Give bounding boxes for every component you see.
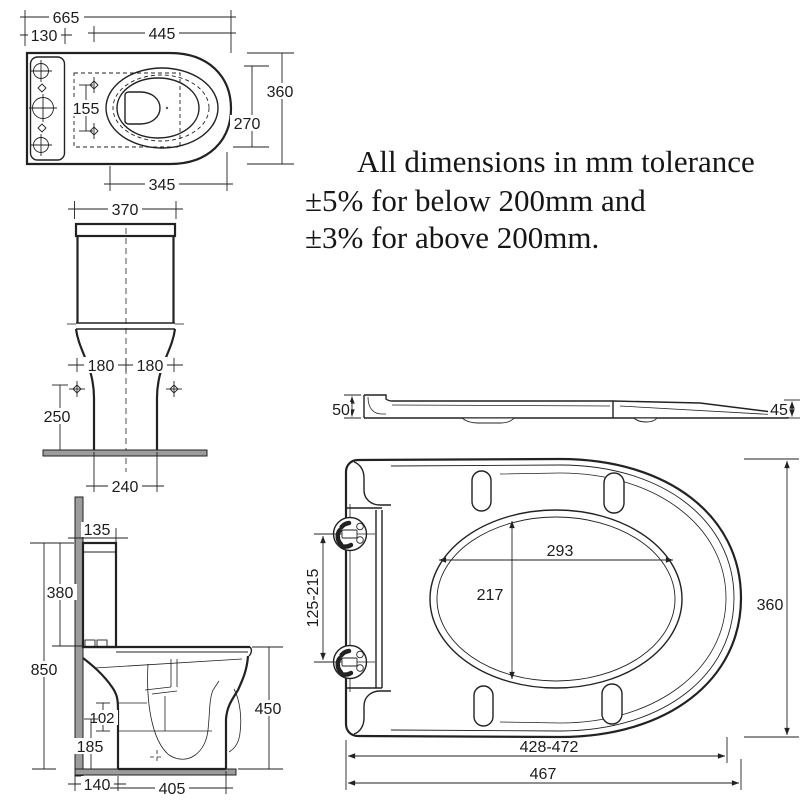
dim-label-front-fixing-height: 250: [44, 409, 71, 426]
seat-top-view: 293 217 360 125-215 428-472 467: [305, 459, 799, 790]
floor-front-view: [43, 450, 207, 456]
dim-label-top-bowl-width: 270: [234, 116, 261, 133]
cistern-lid-front: [76, 224, 175, 236]
cistern-fixing-marks: [29, 60, 57, 156]
dim-label-front-fixing-right: 180: [137, 358, 164, 375]
seat-bumper-2: [634, 418, 657, 422]
seat-bumper-1: [462, 418, 514, 423]
bowl-center-mark: [166, 107, 168, 109]
seat-side-view: 50 45: [330, 395, 800, 423]
dim-label-seat-opening-width: 217: [477, 587, 504, 604]
note-line-2: ±5% for below 200mm and: [305, 183, 646, 218]
seat-side-inner-lines: [368, 397, 780, 415]
bowl-outer-rim: [106, 68, 218, 148]
bowl-sump: [125, 92, 160, 124]
dim-label-side-bowl-height: 450: [255, 701, 282, 718]
dim-label-seat-overall-length: 467: [530, 766, 557, 783]
toilet-front-view: 370 180 180 250 240: [40, 201, 207, 496]
dim-label-top-cistern-depth: 130: [31, 28, 58, 45]
dim-label-seat-fixing-range: 428-472: [520, 739, 579, 756]
dim-label-seat-opening-length: 293: [547, 543, 574, 560]
dim-label-side-cistern-height: 380: [47, 585, 74, 602]
dim-label-top-overall-length: 665: [53, 10, 80, 27]
dim-label-side-outlet-offset: 102: [89, 710, 114, 727]
front-fixing-markers: [69, 381, 182, 397]
toilet-top-view: 665 130 445 345 270 360: [20, 9, 297, 194]
cistern-side-outline: [83, 543, 116, 647]
note-line-3: ±3% for above 200mm.: [305, 220, 599, 255]
dim-label-seat-hinge-pitch: 125-215: [305, 569, 322, 628]
toilet-dimension-drawing: 665 130 445 345 270 360: [0, 0, 800, 800]
technical-drawing-sheet: 665 130 445 345 270 360: [0, 0, 800, 800]
note-line-1: All dimensions in mm tolerance: [357, 144, 755, 179]
seat-side-outline: [364, 395, 788, 418]
dim-label-seat-hinge-thickness: 50: [332, 402, 350, 419]
dim-label-front-base-width: 240: [112, 479, 139, 496]
dim-label-side-cistern-depth: 135: [84, 522, 111, 539]
dim-label-front-fixing-left: 180: [88, 358, 115, 375]
dim-label-seat-front-thickness: 45: [770, 402, 788, 419]
toilet-side-view: 135 380 850 450 102 185: [27, 497, 286, 798]
dim-label-seat-overall-width: 360: [757, 597, 784, 614]
dim-label-side-wall-to-base: 140: [84, 777, 111, 794]
dim-label-top-bowl-length: 345: [149, 177, 176, 194]
dim-label-top-fixing-spacing: 155: [73, 101, 100, 118]
dim-label-top-seat-length: 445: [149, 26, 176, 43]
tolerance-note: All dimensions in mm tolerance ±5% for b…: [305, 144, 755, 255]
dim-label-side-outlet-height: 185: [77, 739, 104, 756]
dim-label-side-overall-height: 850: [31, 662, 58, 679]
wall-side-view: [75, 497, 83, 776]
dim-label-top-overall-width: 360: [267, 84, 294, 101]
seat-edge-dashed: [113, 75, 209, 141]
dim-label-front-cistern-width: 370: [112, 202, 139, 219]
dim-label-side-base-depth: 405: [159, 781, 186, 798]
bowl-inner-rim: [117, 78, 199, 138]
